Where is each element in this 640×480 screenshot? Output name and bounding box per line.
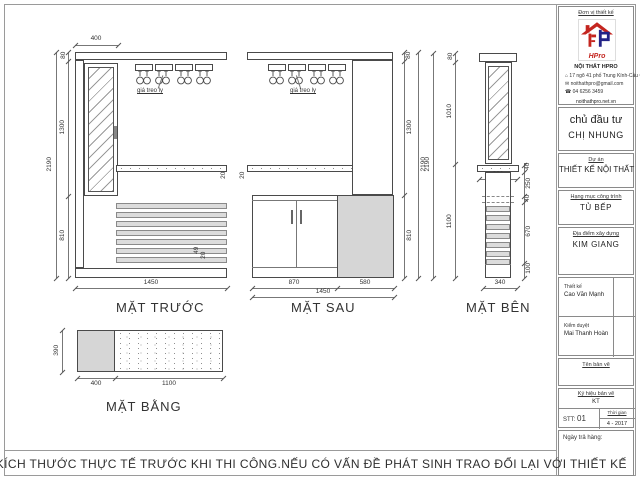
dim-lower-height: 810: [407, 220, 414, 250]
dim-line: [75, 45, 118, 46]
note-bar: KIỂM TRA KÍCH THƯỚC THỰC TẾ TRƯỚC KHI TH…: [4, 450, 556, 476]
slat: [116, 221, 227, 227]
counter-top: [116, 165, 227, 172]
door-handle: [291, 210, 293, 224]
dim-slats-height: 670: [526, 216, 533, 246]
cell-divider: [559, 408, 635, 409]
client-box: chủ đầu tư CHỊ NHUNG: [558, 107, 634, 151]
dim-line: [56, 52, 57, 278]
dim-plinth: 100: [526, 253, 533, 283]
cell-divider: [613, 278, 614, 357]
dim-lower-height: 1100: [447, 206, 454, 236]
dim-line: [68, 52, 69, 278]
dim-right-width: 1100: [152, 381, 186, 388]
dim-counter-thick: 20: [221, 160, 228, 190]
dim-upper-height: 1300: [407, 112, 414, 142]
dim-board-thick: 80: [406, 40, 413, 70]
approver-name: Mai Thanh Hoàn: [564, 331, 608, 337]
client-name: CHỊ NHUNG: [559, 130, 633, 140]
drawing-code-box: Ký hiệu bản vẽ KT STT: 01 Thời gian 4 - …: [558, 388, 634, 428]
dim-line: [483, 288, 517, 289]
people-box: Thiết kế Cao Văn Mạnh Kiểm duyệt Mai Tha…: [558, 277, 634, 356]
dim-shelf-thick: 40: [525, 183, 532, 213]
location-name: KIM GIANG: [559, 240, 633, 249]
drawing-code-label: Ký hiệu bản vẽ: [559, 391, 633, 397]
dim-total-height: 2190: [425, 149, 432, 179]
slat: [116, 239, 227, 245]
slat: [486, 242, 510, 248]
drawing-name-label: Tên bản vẽ: [559, 362, 633, 368]
slat: [486, 215, 510, 221]
dim-line: [62, 330, 63, 372]
dim-depth: 390: [54, 335, 61, 365]
wine-glasses-icon: [267, 70, 347, 89]
designer-name: Cao Văn Mạnh: [564, 292, 604, 298]
top-board: [75, 52, 227, 60]
stt-cell: STT: 01: [563, 414, 586, 423]
side-view-label: MẶT BÊN: [466, 300, 530, 315]
dim-board-thick: 80: [61, 40, 68, 70]
dim-line: [77, 378, 223, 379]
dim-total-height: 2190: [47, 149, 54, 179]
phone-row: ☎ 04 6256 3459: [565, 90, 603, 95]
dim-panel-width: 580: [348, 280, 382, 287]
email-row: ✉ noithathpro@gmail.com: [565, 82, 623, 87]
cell-divider: [559, 316, 635, 317]
top-board: [479, 53, 517, 62]
dim-total-width: 1450: [134, 280, 168, 287]
end-panel: [337, 195, 394, 278]
slat: [116, 212, 227, 218]
bottom-plinth: [75, 268, 227, 278]
project-label: Dự án: [559, 157, 633, 163]
door-handle: [114, 126, 117, 139]
left-side-panel: [75, 60, 84, 268]
dim-line: [404, 52, 405, 278]
slat: [116, 203, 227, 209]
project-box: Dự án THIẾT KẾ NỘI THẤT: [558, 153, 634, 188]
plan-cabinet-block: [77, 330, 115, 372]
slat: [116, 257, 227, 263]
slat: [486, 224, 510, 230]
location-box: Địa điểm xây dựng KIM GIANG: [558, 227, 634, 275]
project-name: THIẾT KẾ NỘI THẤT: [559, 165, 633, 174]
door-handle: [300, 210, 302, 224]
dim-line: [75, 288, 227, 289]
slat: [116, 248, 227, 254]
location-label: Địa điểm xây dựng: [559, 231, 633, 237]
company-name: NỘI THẤT HPRO: [559, 64, 633, 70]
dim-board-thick: 80: [448, 41, 455, 71]
tall-side-panel: [352, 60, 393, 195]
hidden-shelf-line: [482, 202, 514, 203]
phone-text: 04 6256 3459: [573, 89, 604, 95]
slat: [486, 206, 510, 212]
plinth-line: [485, 264, 511, 265]
dim-lower-height: 810: [60, 220, 67, 250]
address-row: ⌂ 17 ngõ 41 phố Trung Kính-Cầu Giấy-HN: [565, 74, 640, 79]
designer-box: Đơn vị thiết kế HPro NỘI THẤT HPRO ⌂ 17 …: [558, 6, 634, 105]
hidden-shelf-line: [482, 196, 514, 197]
dim-left-width: 400: [79, 381, 113, 388]
dim-line: [252, 297, 394, 298]
glass-door-hatch: [88, 67, 114, 192]
address-text: 17 ngõ 41 phố Trung Kính-Cầu Giấy-HN: [569, 73, 640, 79]
dim-top-width: 400: [79, 36, 113, 43]
approve-label: Kiểm duyệt: [564, 323, 589, 329]
dim-upper-height: 1300: [60, 112, 67, 142]
company-logo: HPro: [578, 19, 616, 61]
logo-wordmark: HPro: [579, 53, 615, 60]
dim-counter-thick: 20: [240, 160, 247, 190]
design-label: Thiết kế: [564, 284, 582, 290]
glass-door-hatch: [488, 66, 509, 160]
dim-total-width: 1450: [306, 289, 340, 296]
address-icon: ⌂: [565, 73, 568, 79]
titleblock-divider: [556, 4, 557, 476]
slat: [116, 230, 227, 236]
phone-icon: ☎: [565, 89, 571, 95]
plan-counter-surface: [116, 331, 222, 371]
note-text: KIỂM TRA KÍCH THƯỚC THỰC TẾ TRƯỚC KHI TH…: [0, 457, 627, 471]
time-value: 4 - 2017: [599, 421, 635, 427]
cell-divider: [599, 418, 635, 419]
top-board: [247, 52, 393, 60]
email-text: noithathpro@gmail.com: [571, 81, 624, 87]
drawing-name-box: Tên bản vẽ: [558, 358, 634, 386]
rack-label: giá treo ly: [137, 88, 163, 94]
email-icon: ✉: [565, 81, 569, 87]
slat: [486, 251, 510, 257]
website-text: noithathpro.net.vn: [559, 99, 633, 105]
hpro-house-icon: [581, 22, 613, 48]
category-name: TỦ BẾP: [559, 203, 633, 212]
rack-label: giá treo ly: [290, 88, 316, 94]
dim-upper-height: 1010: [447, 96, 454, 126]
wine-glasses-icon: [134, 70, 214, 89]
category-label: Hạng mục công trình: [559, 194, 633, 200]
front-view-label: MẶT TRƯỚC: [116, 300, 186, 315]
dim-slat-width: 49: [194, 235, 201, 265]
plinth-line: [252, 267, 337, 268]
stt-label: STT:: [563, 417, 575, 423]
dim-base-depth: 340: [483, 280, 517, 287]
dim-line: [433, 53, 434, 278]
stt-value: 01: [577, 414, 586, 423]
delivery-label: Ngày trả hàng:: [563, 435, 602, 441]
counter-top: [247, 165, 353, 172]
dim-slat-gap: 20: [201, 240, 208, 270]
drawing-sheet: giá treo ly 20 49 20 400 1450 80 1300 81…: [0, 0, 640, 480]
plan-view-label: MẶT BẰNG: [106, 399, 174, 414]
client-label: chủ đầu tư: [559, 114, 633, 126]
drawing-code: KT: [559, 399, 633, 405]
back-view-label: MẶT SAU: [291, 300, 355, 315]
slat: [486, 233, 510, 239]
time-label: Thời gian: [599, 410, 635, 415]
category-box: Hạng mục công trình TỦ BẾP: [558, 190, 634, 225]
designer-header: Đơn vị thiết kế: [559, 10, 633, 16]
dim-doors-width: 870: [277, 280, 311, 287]
door-divider: [296, 200, 297, 267]
